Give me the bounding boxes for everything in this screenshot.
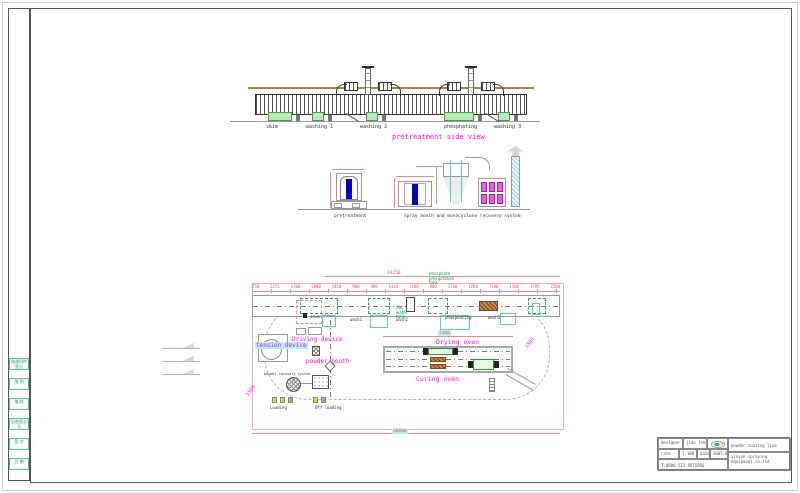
- exhaust-stack: [365, 68, 371, 95]
- drying-burner: [428, 348, 453, 355]
- loading-label: Loading: [270, 405, 287, 410]
- booth-dim-line: [396, 176, 434, 177]
- booth-spur-path: [330, 317, 331, 397]
- oven-dim-line: [383, 336, 513, 337]
- border-registration-table: 借通用件登记描 图描 校旧底图总号签 字日 期: [9, 358, 29, 478]
- flow-arrow: [162, 355, 200, 362]
- filter-cartridge: [497, 194, 503, 204]
- filter-cartridge: [481, 194, 487, 204]
- booth-dim-line-v: [394, 178, 395, 208]
- rate-label-cell: rate: [658, 449, 679, 459]
- tank-washing1: [312, 112, 324, 121]
- pretreatment-tunnel-opening: [346, 179, 352, 199]
- recovery-cyclone: [286, 377, 301, 392]
- tank-washing3: [498, 112, 510, 121]
- curing-oven-label: Curing oven: [416, 375, 459, 383]
- plan-label-wash1: wash1: [350, 317, 362, 322]
- exhaust-stack: [468, 68, 474, 95]
- pretreatment-base-cell: [334, 203, 342, 208]
- elevation-ground-line: [298, 209, 530, 210]
- phone-cell: T:0086-523-8675966: [658, 459, 728, 471]
- hanger-mark: [280, 397, 285, 403]
- pump: [382, 115, 386, 121]
- designer-value-cell: jian feng: [683, 438, 707, 449]
- hot-water-tank-note: hot water tank: [396, 306, 407, 320]
- hanger-mark: [313, 397, 318, 403]
- pump: [478, 115, 482, 121]
- plan-label-skim: skim: [310, 314, 320, 319]
- title-block: designer jian feng rate 1:100 date 2005.…: [657, 437, 790, 470]
- tank-label-washing3: washing 3: [494, 124, 521, 130]
- offloading-label: Off loading: [315, 405, 342, 410]
- powder-recovery-label: powder recovery system: [264, 372, 310, 376]
- ladder: [489, 378, 495, 392]
- sideview-ground-line: [230, 121, 540, 122]
- note-line: tank: [396, 315, 407, 320]
- spray-system-label: spray booth and monocyclone recovery sys…: [404, 214, 521, 219]
- plan-label-phosphating: phosphating: [445, 315, 472, 320]
- driving-unit-box: [308, 327, 322, 335]
- plan-wash-tank-body: [532, 303, 540, 315]
- plan-wash-tank-body: [370, 315, 388, 328]
- exhaust-stack-tower: [511, 156, 520, 207]
- tank-skim: [268, 112, 292, 121]
- pump: [514, 115, 518, 121]
- plan-bottom-dim-value: 30000: [392, 429, 408, 434]
- logo-dot: [721, 443, 723, 445]
- plan-wash-tank-body: [500, 313, 516, 325]
- recovery-filter-box: [312, 375, 329, 389]
- rate-value-cell: 1:100: [679, 449, 697, 459]
- burner-motor: [423, 348, 428, 355]
- company-name-cell: xinyue spraying equipment co,ltd: [728, 452, 791, 471]
- registration-cell: 借通用件登记: [9, 358, 29, 370]
- logo-cell: [707, 438, 728, 449]
- tension-device-label: tension device: [255, 342, 308, 349]
- pump: [296, 115, 300, 121]
- logo-leaf: [714, 443, 720, 446]
- pretreatment-base-cell: [352, 203, 360, 208]
- pretreatment-dim-line-h: [332, 169, 364, 170]
- sideview-title: pretreatment side view: [392, 133, 485, 141]
- designer-label-cell: designer: [658, 438, 683, 449]
- drawing-sheet: 借通用件登记描 图描 校旧底图总号签 字日 期 skim washing 1 w…: [0, 0, 800, 493]
- tank-phosphating: [444, 112, 474, 121]
- tank-label-washing1: washing 1: [306, 124, 333, 130]
- recovery-duct: [301, 383, 312, 384]
- registration-cell: 旧底图总号: [9, 418, 29, 430]
- heater-bank: [430, 357, 446, 362]
- company-logo-icon: [711, 441, 725, 448]
- exhaust-stack-cap: [362, 66, 374, 68]
- pretreatment-elevation-label: pretreatment: [334, 214, 367, 219]
- duct-cyclone-to-filter: [465, 157, 490, 170]
- plan-tank-zone: [368, 298, 390, 314]
- heater-bank: [430, 364, 446, 369]
- exhaust-duct-left: [439, 84, 450, 96]
- registration-cell: 日 期: [9, 458, 29, 470]
- filter-cartridge: [489, 182, 495, 192]
- burner-motor: [494, 361, 499, 368]
- hanger-mark: [321, 397, 326, 403]
- burner-motor: [453, 348, 458, 355]
- filter-cartridge: [481, 182, 487, 192]
- exhaust-duct-left: [336, 84, 347, 96]
- skim-station: [296, 300, 322, 324]
- driving-unit-box: [296, 328, 306, 335]
- plan-label-wash3: wash3: [488, 315, 500, 320]
- registration-cell: 描 校: [9, 398, 29, 410]
- flow-arrow: [162, 368, 200, 375]
- sideview-conveyor-band: [255, 94, 527, 115]
- date-label-cell: date: [697, 449, 710, 459]
- plan-phosphating-tank: [479, 301, 498, 311]
- tank-label-washing2: washing 2: [360, 124, 387, 130]
- spray-booth-filter-cartridge: [412, 184, 418, 205]
- drying-oven-label: Drying oven: [436, 338, 479, 346]
- registration-cell: 描 图: [9, 378, 29, 390]
- cyclone-inner-pipe: [450, 160, 451, 202]
- tank-label-phosphating: phosphating: [444, 124, 477, 130]
- date-value-cell: 2005.07: [710, 449, 728, 459]
- powder-booth-label: powder booth: [306, 358, 349, 365]
- dimension-chain-line: [252, 291, 560, 292]
- oven-dim-value: 7300: [438, 331, 451, 336]
- plan-tank-zone: [428, 298, 448, 314]
- exhaust-stack-cap: [465, 66, 477, 68]
- plan-wash-tank-body: [322, 315, 336, 327]
- filter-cartridge: [497, 182, 503, 192]
- flow-arrow: [162, 342, 200, 349]
- tank-washing2: [366, 112, 378, 121]
- filter-cartridge: [489, 194, 495, 204]
- registration-cell: 签 字: [9, 438, 29, 450]
- cyclone-inner-pipe: [461, 160, 462, 202]
- plan-top-dim-value: 24250: [386, 271, 402, 276]
- skim-pump: [303, 313, 307, 318]
- drive-motor: [312, 346, 320, 356]
- hanger-mark: [272, 397, 277, 403]
- tank-label-skim: skim: [266, 124, 278, 130]
- duct-booth-to-cyclone-v: [436, 166, 437, 204]
- curing-burner: [473, 359, 494, 370]
- pump: [328, 115, 332, 121]
- hanger-mark: [288, 397, 293, 403]
- burner-motor: [468, 361, 473, 368]
- product-name-cell: powder coating line: [728, 438, 791, 452]
